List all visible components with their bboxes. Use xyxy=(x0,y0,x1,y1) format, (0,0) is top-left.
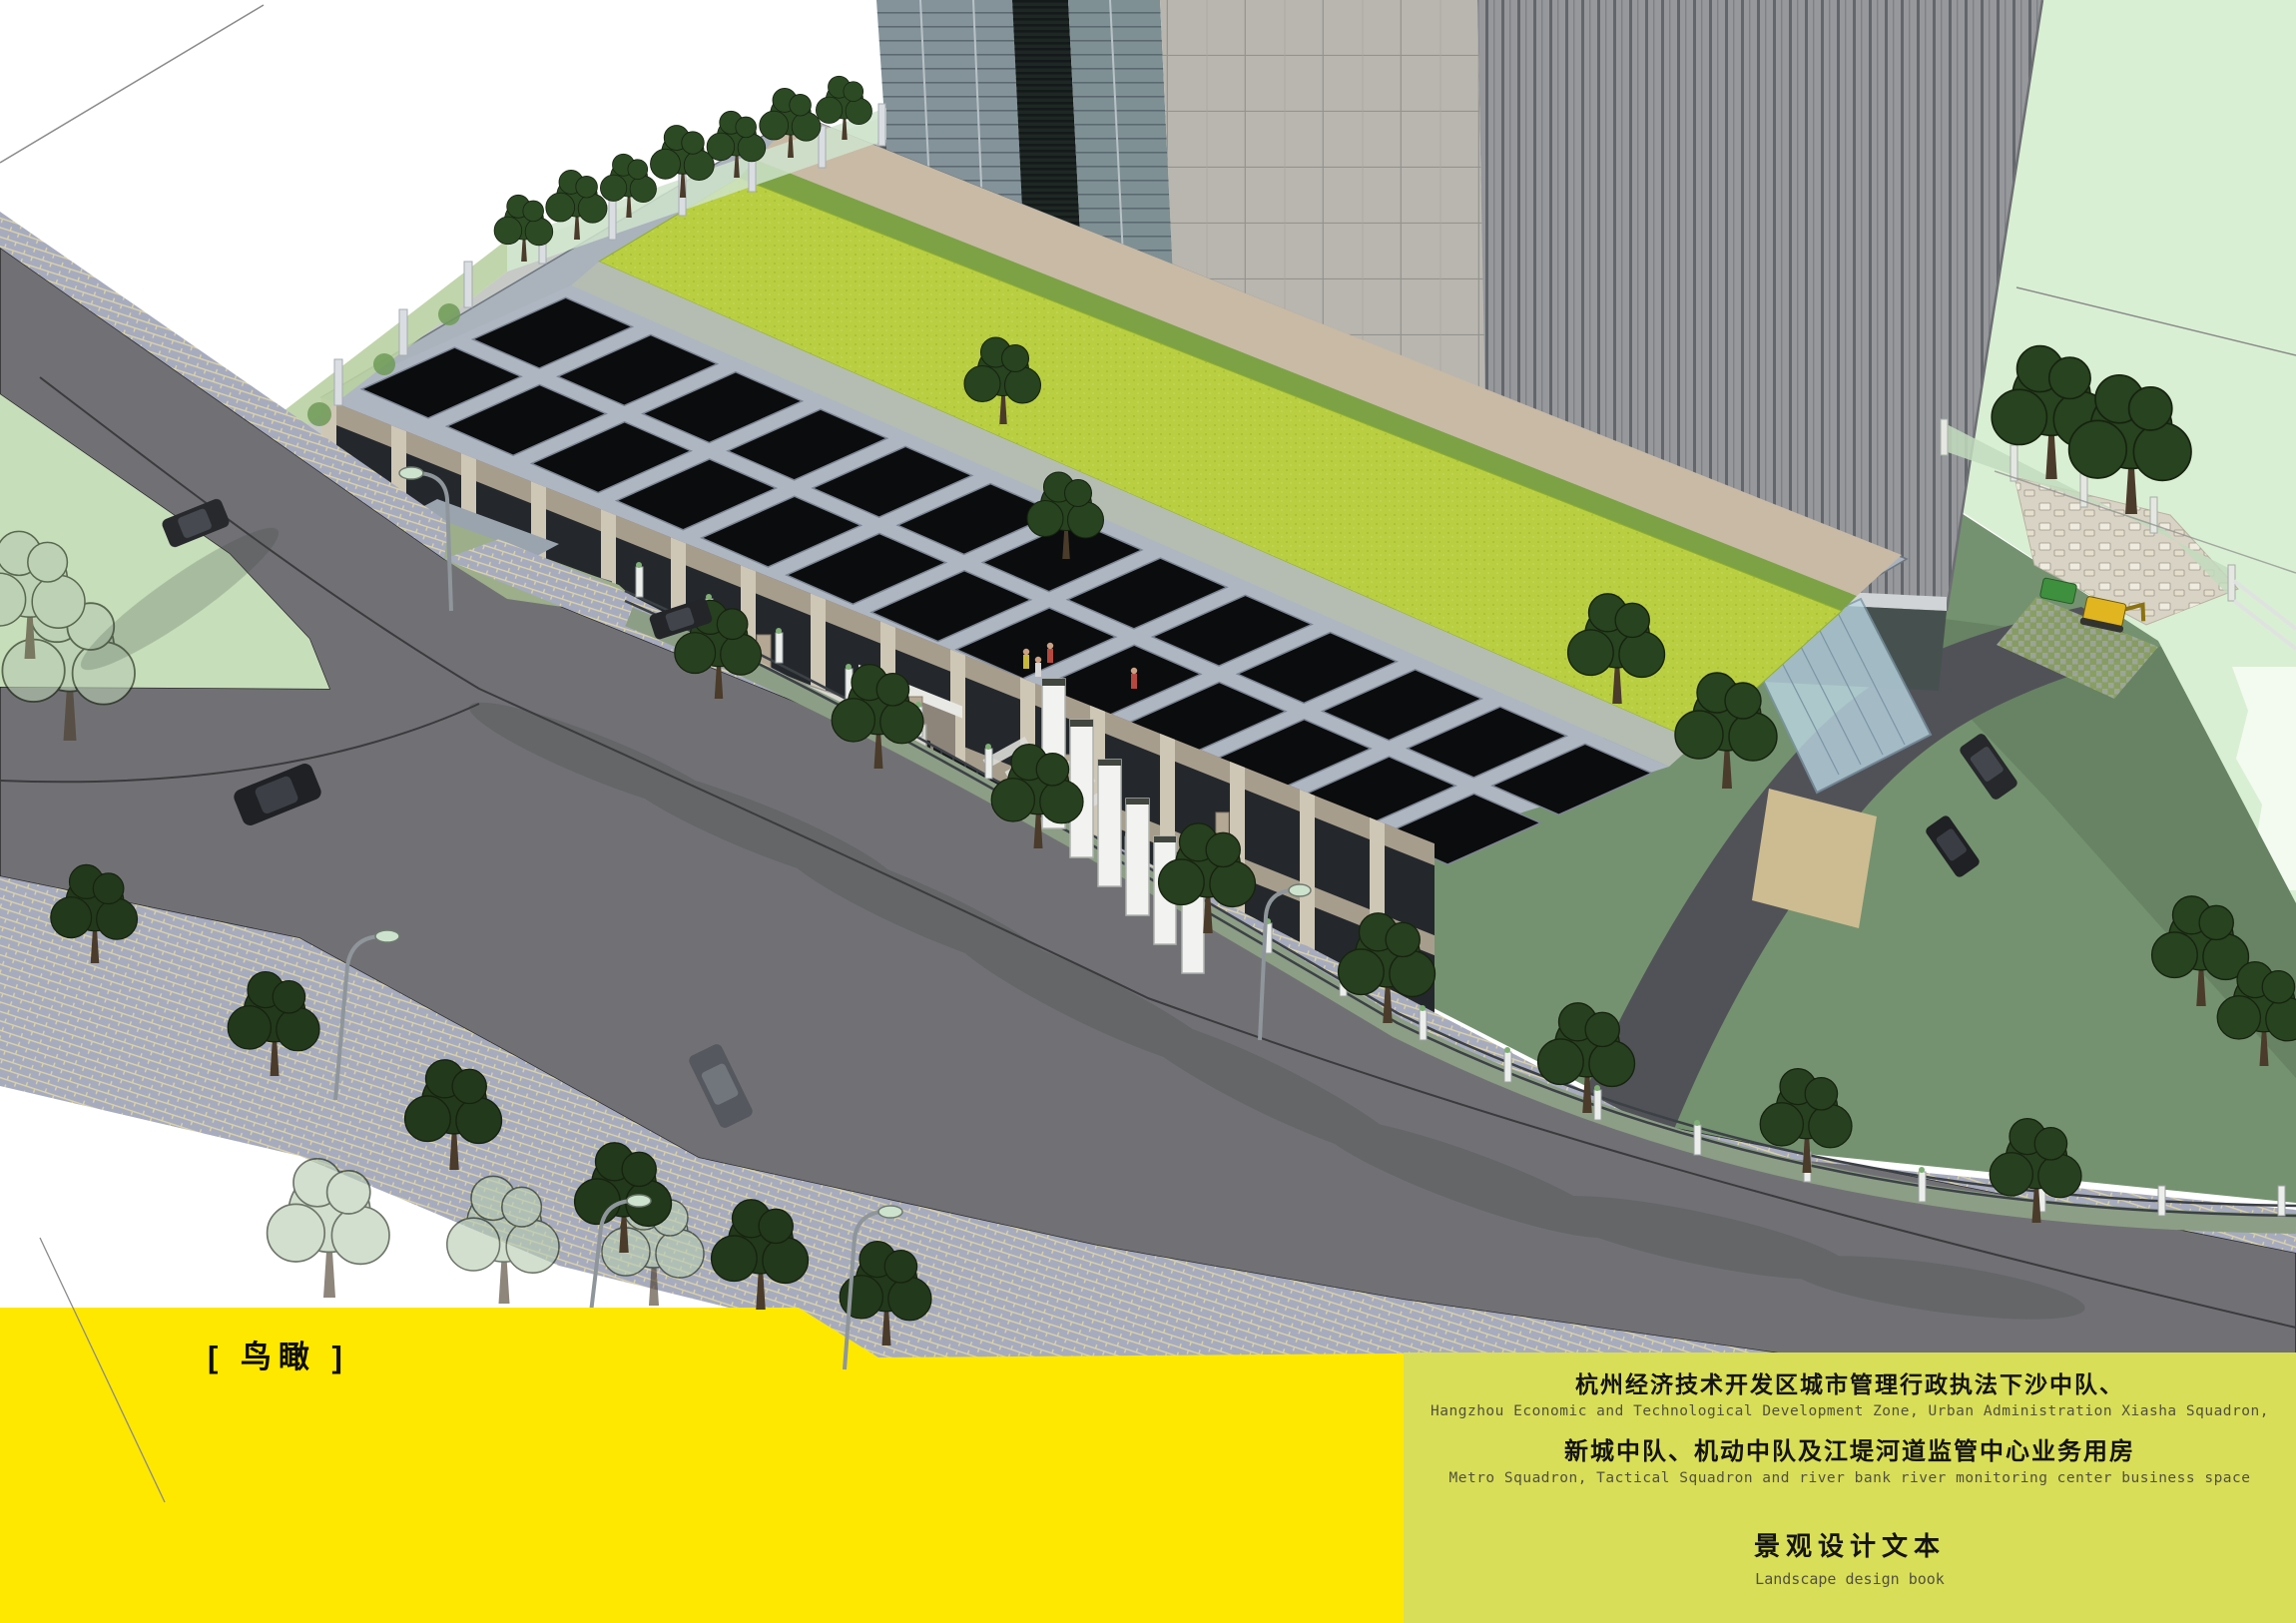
project-title-en-2: Metro Squadron, Tactical Squadron and ri… xyxy=(1404,1470,2296,1486)
view-label: [ 鸟瞰 ] xyxy=(208,1332,349,1376)
project-title-cn-1: 杭州经济技术开发区城市管理行政执法下沙中队、 xyxy=(1404,1365,2296,1399)
document-type-en: Landscape design book xyxy=(1404,1570,2296,1588)
landscape-design-book-page: { "page_label": { "text": "[ 鸟瞰 ]" }, "t… xyxy=(0,0,2296,1623)
project-title-en-1: Hangzhou Economic and Technological Deve… xyxy=(1404,1403,2296,1419)
title-block: 杭州经济技术开发区城市管理行政执法下沙中队、 Hangzhou Economic… xyxy=(1404,1365,2296,1588)
project-title-cn-2: 新城中队、机动中队及江堤河道监管中心业务用房 xyxy=(1404,1431,2296,1466)
document-type-cn: 景观设计文本 xyxy=(1404,1526,2296,1563)
